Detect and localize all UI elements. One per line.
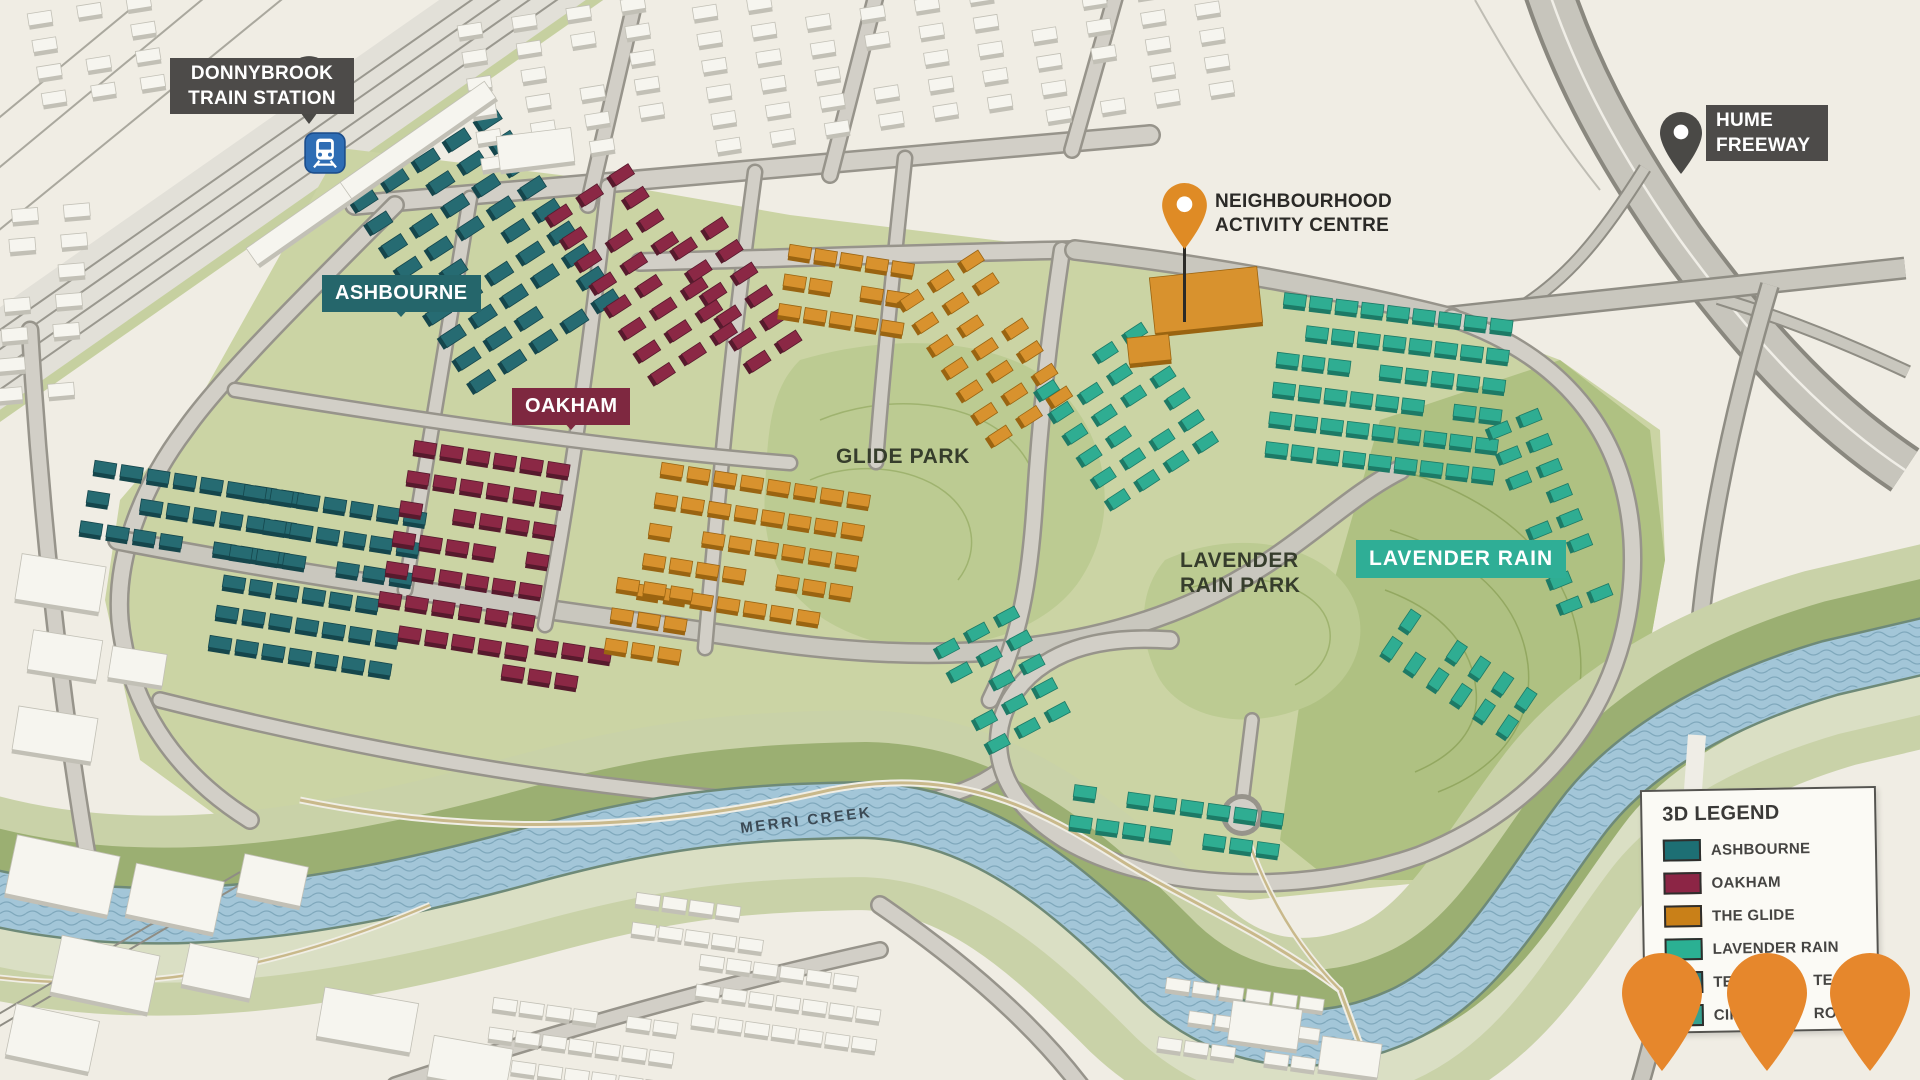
legend-swatch-oakham (1663, 872, 1701, 895)
train-station-icon (304, 132, 346, 174)
corner-pin-1 (1622, 953, 1702, 1071)
glide-park-label: GLIDE PARK (836, 444, 970, 469)
legend-swatch-ashbourne (1663, 839, 1701, 862)
ashbourne-tag-label: ASHBOURNE (335, 282, 468, 304)
legend-label-oakham: OAKHAM (1711, 874, 1781, 892)
freeway-label-line1: HUME (1716, 108, 1818, 133)
activity-centre-pointer-line (1183, 246, 1186, 322)
activity-centre-label: NEIGHBOURHOOD ACTIVITY CENTRE (1215, 190, 1392, 238)
lavender-rain-park-label: LAVENDER RAIN PARK (1180, 548, 1301, 598)
corner-pin-2 (1727, 953, 1807, 1071)
activity-centre-label-line2: ACTIVITY CENTRE (1215, 214, 1392, 238)
lavender-rain-park-line1: LAVENDER (1180, 548, 1301, 573)
legend-row-the-glide: THE GLIDE (1644, 902, 1876, 930)
hume-freeway-pin (1660, 112, 1702, 174)
legend-title: 3D LEGEND (1662, 802, 1780, 827)
map-artwork (0, 0, 1920, 1080)
freeway-label: HUME FREEWAY (1706, 105, 1828, 161)
station-label-line2: TRAIN STATION (180, 86, 344, 111)
legend-swatch-the-glide (1664, 905, 1702, 928)
masterplan-map: DONNYBROOK TRAIN STATION HUME FREEWAY (0, 0, 1920, 1080)
legend-row-ashbourne: ASHBOURNE (1643, 836, 1875, 864)
station-label-line1: DONNYBROOK (180, 61, 344, 86)
ashbourne-tag-pointer (392, 307, 410, 326)
legend-label-the-glide: THE GLIDE (1712, 906, 1795, 924)
station-label: DONNYBROOK TRAIN STATION (170, 58, 354, 114)
lavender-rain-tag-label: LAVENDER RAIN (1369, 547, 1553, 570)
activity-centre-label-line1: NEIGHBOURHOOD (1215, 190, 1392, 214)
oakham-tag: OAKHAM (512, 388, 630, 425)
oakham-tag-pointer (562, 420, 580, 439)
activity-centre-pin (1162, 183, 1207, 249)
freeway-label-line2: FREEWAY (1716, 133, 1818, 158)
legend-label-ashbourne: ASHBOURNE (1711, 840, 1811, 859)
lavender-rain-park-line2: RAIN PARK (1180, 573, 1301, 598)
ashbourne-tag: ASHBOURNE (322, 275, 481, 312)
legend-row-oakham: OAKHAM (1643, 869, 1875, 897)
lavender-rain-tag: LAVENDER RAIN (1356, 540, 1566, 578)
oakham-tag-label: OAKHAM (525, 395, 617, 417)
corner-pin-3 (1830, 953, 1910, 1071)
